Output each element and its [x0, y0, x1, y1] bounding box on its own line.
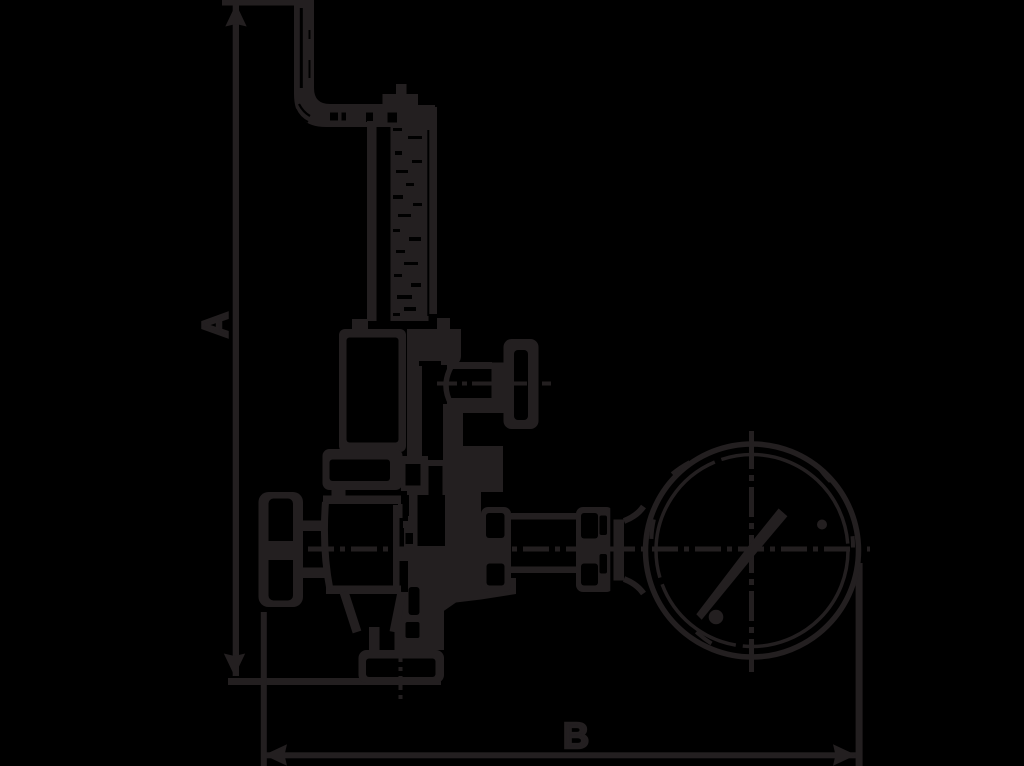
svg-text:B: B: [563, 715, 589, 756]
svg-text:A: A: [195, 312, 236, 338]
